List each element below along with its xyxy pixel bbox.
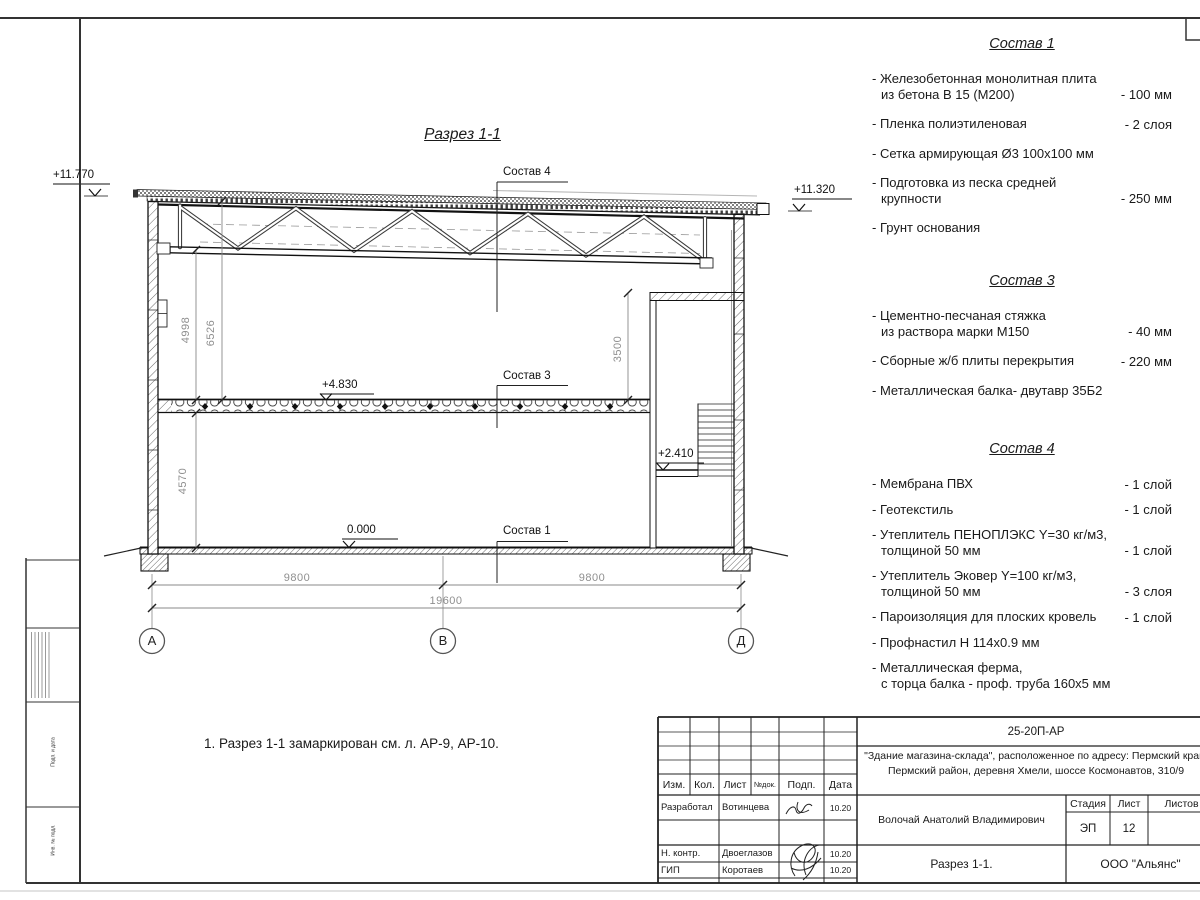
side-stamp-label: Инв. № подл. xyxy=(51,805,57,876)
list-item: - Металлическая ферма,с торца балка - пр… xyxy=(872,660,1172,691)
list-item: - Грунт основания xyxy=(872,220,1172,236)
row-role: Н. контр. xyxy=(658,845,722,862)
side-stamp-label: Подп. и дата xyxy=(51,700,57,805)
vertical-dimensions xyxy=(196,201,628,548)
signatures xyxy=(786,802,821,880)
project-name: "Здание магазина-склада", расположенное … xyxy=(859,749,1200,779)
sheets-label: Листов xyxy=(1148,795,1200,812)
elevation-slab: +4.830 xyxy=(322,379,358,391)
list-item: - Цементно-песчаная стяжкаиз раствора ма… xyxy=(872,308,1172,339)
header-doc: №док. xyxy=(751,774,779,795)
floor-slab xyxy=(158,400,650,413)
drawing-name: Разрез 1-1. xyxy=(857,845,1066,883)
stair-enclosure xyxy=(650,293,744,549)
callout-sostav4: Состав 4 xyxy=(503,166,551,178)
list-item: - Железобетонная монолитная плитаиз бето… xyxy=(872,71,1172,102)
dim-9800-right: 9800 xyxy=(562,572,622,584)
section-title: Разрез 1-1 xyxy=(380,126,545,144)
row-date: 10.20 xyxy=(824,795,857,820)
elevation-roof-low: +11.320 xyxy=(794,184,835,196)
list-item: - Пленка полиэтиленовая - 2 слоя xyxy=(872,116,1172,132)
header-izm: Изм. xyxy=(658,774,690,795)
right-wall xyxy=(732,214,745,554)
list-item: - Геотекстиль - 1 слой xyxy=(872,502,1172,518)
composition-list-3: Состав 3 - Цементно-песчаная стяжкаиз ра… xyxy=(872,273,1172,412)
list-item: - Подготовка из песка среднейкрупности -… xyxy=(872,175,1172,206)
elevation-roof-high: +11.770 xyxy=(53,169,94,181)
truss-bottom-chord xyxy=(170,247,712,264)
dim-4998: 4998 xyxy=(180,300,192,360)
list-title: Состав 1 xyxy=(872,36,1172,52)
row-date: 10.20 xyxy=(824,845,857,862)
sheet-number: 12 xyxy=(1110,812,1148,845)
axis-bubble-a: А xyxy=(140,633,164,648)
list-item: - Профнастил Н 114х0.9 мм xyxy=(872,635,1172,651)
truss-web xyxy=(180,206,705,259)
callout-sostav3: Состав 3 xyxy=(503,370,551,382)
side-stamp-approvals xyxy=(31,632,52,698)
dim-4570: 4570 xyxy=(177,451,189,511)
sheet-label: Лист xyxy=(1110,795,1148,812)
dim-3500: 3500 xyxy=(612,319,624,379)
header-podp: Подп. xyxy=(779,774,824,795)
header-list: Лист xyxy=(719,774,751,795)
list-item: - Пароизоляция для плоских кровель - 1 с… xyxy=(872,609,1172,625)
dim-6526: 6526 xyxy=(205,303,217,363)
axis-bubble-d: Д xyxy=(729,633,753,648)
doc-number: 25-20П-АР xyxy=(857,718,1200,745)
elevation-zero: 0.000 xyxy=(347,524,376,536)
dim-9800-left: 9800 xyxy=(267,572,327,584)
list-item: - Утеплитель Эковер Y=100 кг/м3,толщиной… xyxy=(872,568,1172,599)
list-item: - Сборные ж/б плиты перекрытия - 220 мм xyxy=(872,353,1172,369)
elevation-landing: +2.410 xyxy=(658,448,694,460)
drawing-note: 1. Разрез 1-1 замаркирован см. л. АР-9, … xyxy=(204,736,499,751)
ground-slab xyxy=(104,548,788,572)
stair-flight xyxy=(698,404,734,476)
company-name: ООО "Альянс" xyxy=(1066,845,1200,883)
composition-list-4: Состав 4 - Мембрана ПВХ - 1 слой - Геоте… xyxy=(872,441,1172,701)
stage-value: ЭП xyxy=(1066,812,1110,845)
row-name: Вотинцева xyxy=(719,795,782,820)
author-name: Волочай Анатолий Владимирович xyxy=(857,795,1066,845)
row-role: ГИП xyxy=(658,862,722,878)
list-title: Состав 3 xyxy=(872,273,1172,289)
list-item: - Металлическая балка- двутавр 35Б2 xyxy=(872,383,1172,399)
header-kol: Кол. xyxy=(690,774,719,795)
stage-label: Стадия xyxy=(1066,795,1110,812)
drawing-sheet: { "sheet": { "section_title": "Разрез 1-… xyxy=(0,0,1200,900)
list-item: - Сетка армирующая Ø3 100х100 мм xyxy=(872,146,1172,162)
row-name: Двоеглазов xyxy=(719,845,782,862)
row-name: Коротаев xyxy=(719,862,782,878)
composition-list-1: Состав 1 - Железобетонная монолитная пли… xyxy=(872,36,1172,250)
row-role: Разработал xyxy=(658,795,722,820)
list-item: - Утеплитель ПЕНОПЛЭКС Y=30 кг/м3,толщин… xyxy=(872,527,1172,558)
list-title: Состав 4 xyxy=(872,441,1172,457)
axis-bubble-b: В xyxy=(431,633,455,648)
list-item: - Мембрана ПВХ - 1 слой xyxy=(872,476,1172,492)
header-data: Дата xyxy=(824,774,857,795)
callout-leaders xyxy=(497,182,568,583)
callout-sostav1: Состав 1 xyxy=(503,525,551,537)
row-date: 10.20 xyxy=(824,862,857,878)
dim-19600: 19600 xyxy=(411,595,481,607)
